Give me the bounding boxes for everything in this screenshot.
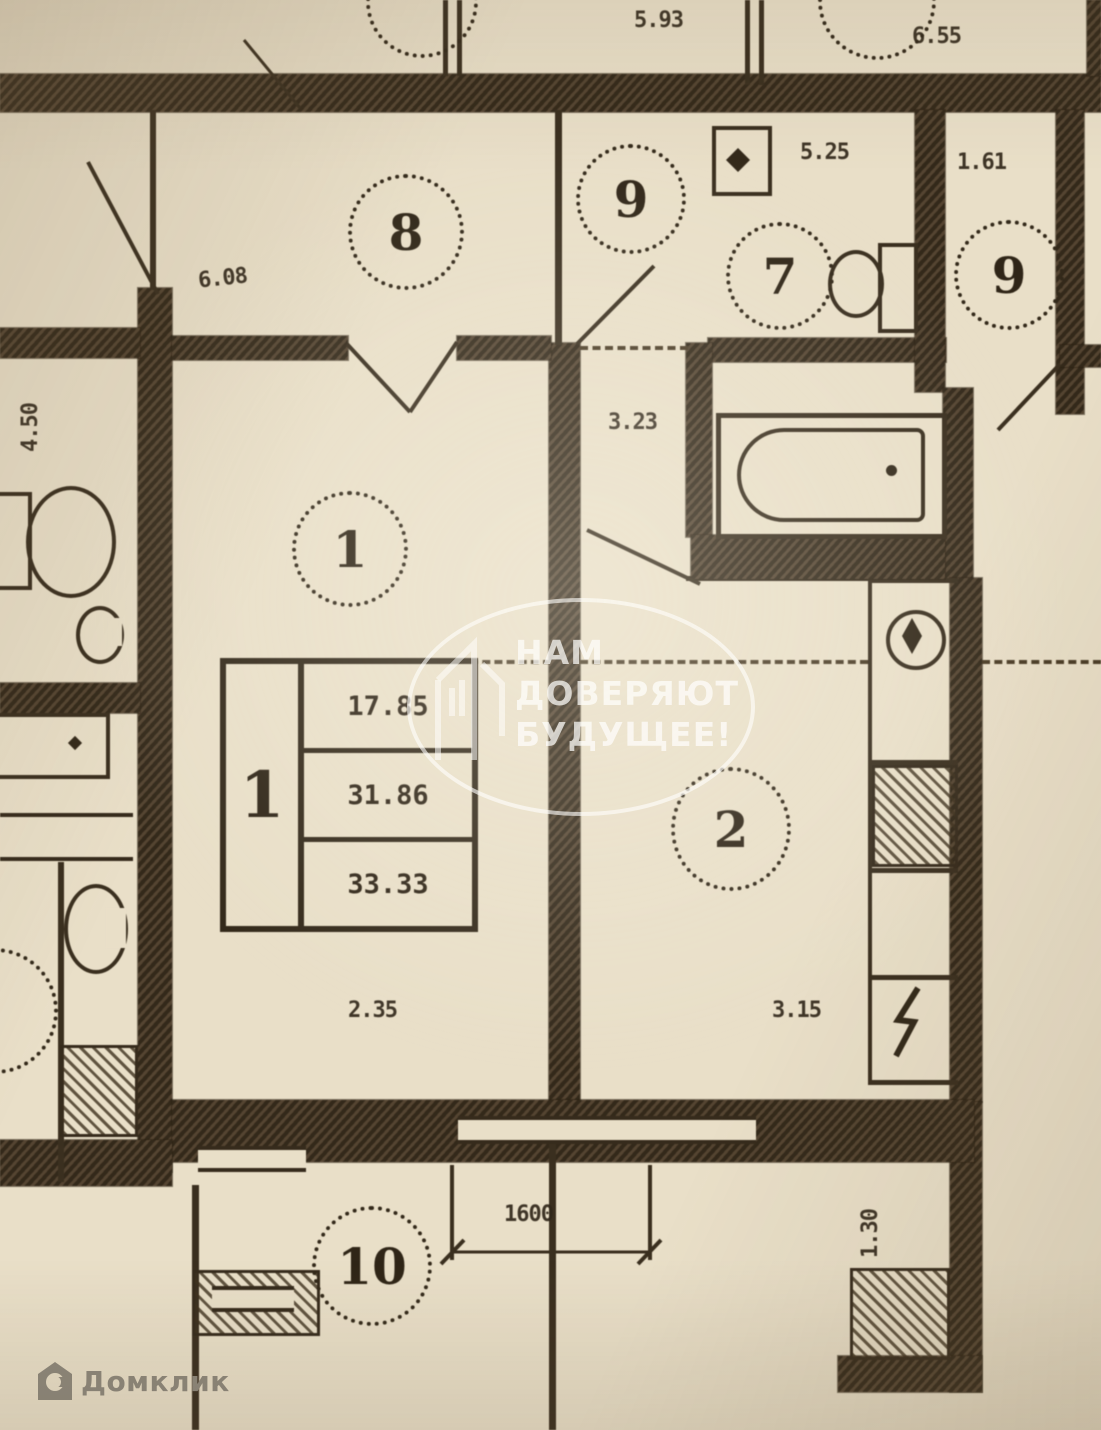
partition-left-upper: [150, 110, 156, 290]
shaft-divider-5: [868, 1080, 958, 1085]
room-9-right-number: 9: [992, 246, 1027, 305]
door-swing-left-room: [88, 162, 158, 294]
dashed-line-hall: [580, 346, 688, 350]
apartment-info-table: 1 17.85 31.86 33.33: [220, 658, 478, 932]
room-8-number: 8: [389, 203, 424, 262]
wall-room7-bottom: [708, 338, 946, 362]
room-circle-7: 7: [726, 222, 834, 330]
wall-top-right-corner: [1087, 0, 1101, 76]
room-10-number: 10: [337, 1237, 407, 1296]
wall-bath-right: [943, 388, 973, 582]
dim-room8-width: 6.08: [197, 264, 248, 294]
wall-bottom-left: [0, 1140, 172, 1186]
door-swing-hall: [577, 266, 654, 344]
toilet-tank-icon: [878, 243, 918, 333]
wall-central-vertical: [549, 343, 580, 1137]
room-circle-8: 8: [348, 174, 464, 290]
vent-box-icon: [712, 126, 772, 196]
toilet-bowl-icon: [828, 250, 884, 318]
left-strip-opening: [0, 813, 133, 861]
door-swing-right-strip: [998, 364, 1060, 430]
dim-room2-width: 3.15: [772, 998, 821, 1023]
dim-hall-width: 3.23: [608, 410, 657, 435]
brand-name: Домклик: [81, 1365, 230, 1398]
window-balcony: [458, 1116, 756, 1144]
room-circle-2: 2: [671, 767, 791, 891]
stove-icon: [0, 713, 110, 779]
floorplan-drawing: 8 9 7 9 1 2 10 1 17.85 31.86 33.33 5.93 …: [0, 0, 1101, 1430]
dim-balcony-width: 1600: [504, 1202, 553, 1227]
left-toilet-bowl-icon: [26, 486, 116, 598]
shaft-divider-4: [868, 975, 958, 980]
bath-bottom-band: [691, 535, 945, 579]
room-circle-10: 10: [312, 1206, 432, 1326]
dim-loggia-depth: 1.30: [858, 1209, 883, 1258]
wall-room8-bottom-left: [172, 336, 348, 360]
wall-top: [0, 74, 1101, 112]
bathtub-tap-icon: [886, 465, 897, 476]
dashed-line-room2: [580, 660, 868, 664]
dim-extension-right: [648, 1165, 652, 1260]
wall-loggia-bottom: [838, 1356, 982, 1392]
shaft-hatched-box: [872, 765, 958, 867]
brand-logo-icon: [38, 1362, 72, 1400]
partition-stub-c: [745, 0, 750, 85]
basin-gap: [106, 908, 126, 948]
area-total-with-balcony: 33.33: [304, 842, 472, 926]
room-7-number: 7: [763, 247, 798, 306]
room-circle-1: 1: [292, 491, 408, 607]
partial-room-circle-left: [0, 948, 58, 1074]
dashed-line-right: [982, 660, 1101, 664]
dim-room1-width: 2.35: [348, 998, 397, 1023]
partition-central-upper: [555, 110, 562, 345]
balcony-center-line: [549, 1137, 556, 1430]
apartment-areas: 17.85 31.86 33.33: [304, 664, 472, 926]
window-left: [198, 1146, 306, 1172]
room-2-number: 2: [714, 800, 749, 859]
dim-top-right: 6.55: [912, 24, 961, 49]
door-swing-room8-a: [347, 344, 410, 412]
wall-room8-bottom-right: [457, 336, 551, 360]
dim-extension-left: [450, 1165, 454, 1260]
brand-watermark: Домклик: [38, 1362, 230, 1400]
floorplan-photo: 8 9 7 9 1 2 10 1 17.85 31.86 33.33 5.93 …: [0, 0, 1101, 1430]
balcony-parapet-slot: [212, 1286, 294, 1312]
partition-stub-d: [759, 0, 764, 85]
loggia-corner-box: [850, 1268, 950, 1360]
door-swing-bath: [587, 530, 700, 584]
dim-right-width: 1.61: [957, 150, 1006, 175]
area-living: 17.85: [304, 664, 472, 753]
wall-bath-left: [686, 343, 712, 537]
wall-left-strip-mid: [0, 683, 140, 713]
room-9-number: 9: [614, 170, 649, 229]
room-circle-9: 9: [576, 144, 686, 254]
small-sink-gap: [108, 618, 122, 646]
bathtub-inner-icon: [737, 428, 925, 522]
lightning-icon: [896, 988, 918, 1056]
door-swing-room8-b: [410, 342, 457, 412]
shaft-divider-3: [868, 868, 958, 873]
wall-left-vertical: [138, 288, 172, 1172]
wall-right-strip-bottom: [1060, 345, 1101, 367]
wall-left-horizontal: [0, 328, 140, 358]
room-1-number: 1: [333, 520, 368, 579]
wall-upper-right: [915, 110, 945, 392]
dim-room7-width: 5.25: [800, 140, 849, 165]
left-shaft-box: [60, 1045, 138, 1137]
dim-top-center: 5.93: [634, 8, 683, 33]
apartment-number: 1: [226, 664, 304, 926]
room-circle-9-right: 9: [954, 220, 1064, 330]
area-total: 31.86: [304, 753, 472, 842]
vent-fan-icon: [886, 610, 946, 670]
dim-left-height: 4.50: [18, 403, 43, 452]
